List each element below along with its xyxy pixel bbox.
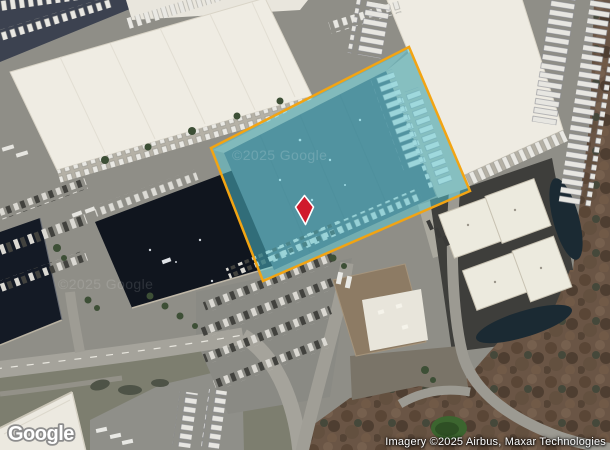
google-logo-text[interactable]: Google [8, 423, 74, 445]
map-canvas[interactable] [0, 0, 610, 450]
google-logo[interactable]: Google [6, 421, 78, 447]
imagery-attribution: Imagery ©2025 Airbus, Maxar Technologies [385, 436, 606, 448]
satellite-map-view[interactable]: ©2025 Google ©2025 Google Google Imagery… [0, 0, 610, 450]
